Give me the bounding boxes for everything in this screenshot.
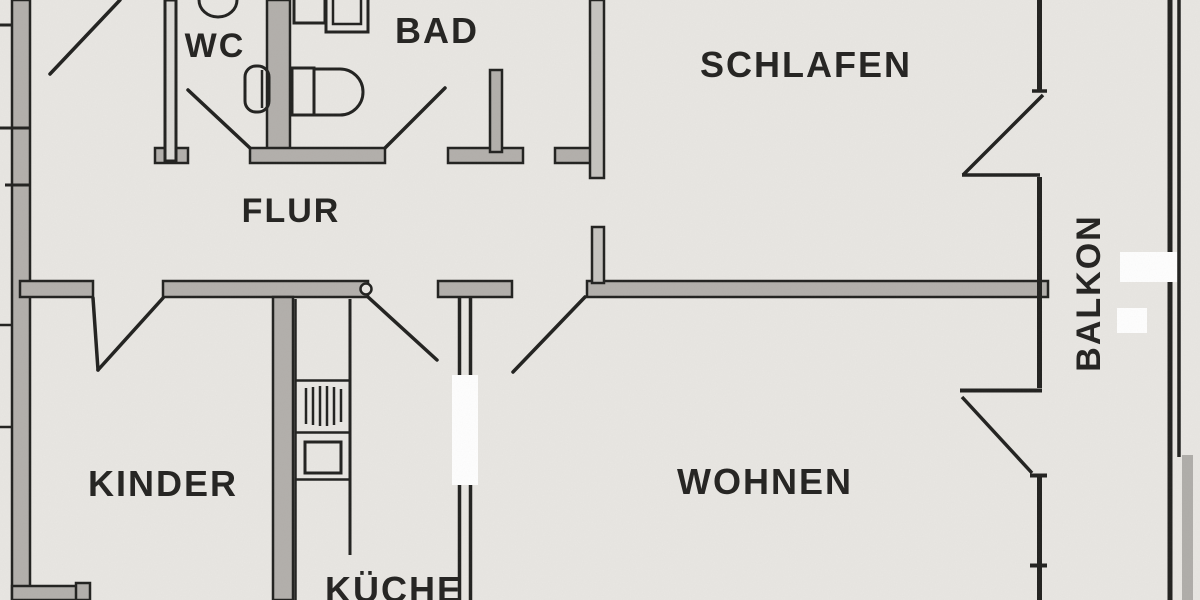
wohnen-balcony-door-swing — [962, 397, 1032, 473]
room-label-kinder: KINDER — [88, 466, 238, 502]
kueche-sink-icon — [305, 442, 341, 473]
wohnen-door-swing — [513, 297, 585, 372]
room-label-balkon: BALKON — [1072, 214, 1106, 371]
wall-schlafen-stub — [592, 227, 604, 283]
entry-door-swing — [50, 0, 120, 74]
wall-outer-left — [12, 0, 30, 600]
wall-bad-stub — [490, 70, 502, 152]
kueche-stove-icon — [306, 386, 341, 426]
wc-washbasin-icon — [245, 66, 269, 112]
bad-washbasin-cabinet-icon — [294, 0, 325, 23]
wall-bad-bottom-right — [448, 148, 523, 163]
bad-toilet-bowl-icon — [314, 69, 363, 115]
wc-toilet-icon — [199, 0, 237, 17]
wall-wc-left — [165, 0, 176, 161]
wall-bad-schlafen — [590, 0, 604, 178]
door-hinge-kueche — [361, 284, 372, 295]
room-label-schlafen: SCHLAFEN — [700, 47, 912, 83]
room-label-wohnen: WOHNEN — [677, 464, 853, 500]
schlafen-balcony-door-swing — [963, 95, 1043, 175]
wall-wc-bad-bottom — [250, 148, 385, 163]
wall-flur-south-b — [163, 281, 368, 297]
room-label-kueche: KÜCHE — [325, 572, 463, 600]
bad-door-swing — [385, 88, 445, 148]
floorplan-canvas: WC BAD SCHLAFEN FLUR KINDER KÜCHE WOHNEN… — [0, 0, 1200, 600]
room-label-wc: WC — [185, 29, 246, 63]
wc-door-swing — [188, 90, 250, 148]
wall-kinder-kueche — [273, 297, 293, 600]
wall-bad-bottom-end — [555, 148, 592, 163]
kueche-door-swing — [368, 297, 437, 360]
white-patch-balcony-2 — [1117, 308, 1147, 333]
wall-flur-south-a — [20, 281, 93, 297]
wall-kinder-bottom-stub — [76, 583, 90, 600]
white-patch-partition — [452, 375, 478, 485]
kinder-door-leaf — [93, 298, 98, 370]
scan-streak-right — [1182, 455, 1193, 600]
wall-flur-south-c — [438, 281, 512, 297]
floorplan-drawing — [0, 0, 1200, 600]
wall-wohnen-north — [587, 281, 1048, 297]
room-label-flur: FLUR — [242, 194, 341, 228]
kinder-door-swing — [98, 298, 163, 370]
bad-toilet-tank-icon — [292, 68, 314, 115]
room-label-bad: BAD — [395, 13, 479, 49]
white-patch-balcony-1 — [1120, 252, 1177, 282]
bad-washbasin-bowl-detail — [333, 0, 361, 24]
